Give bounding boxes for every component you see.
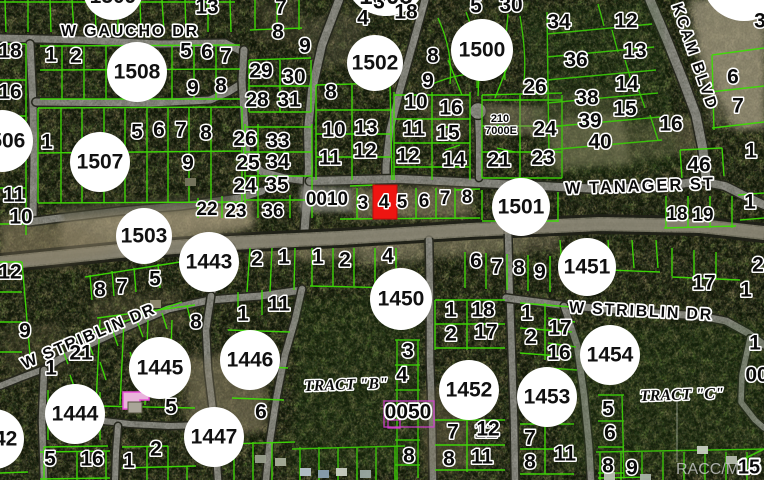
- svg-text:11: 11: [403, 118, 426, 141]
- svg-text:8: 8: [190, 311, 202, 334]
- svg-text:34: 34: [266, 151, 290, 174]
- svg-text:5: 5: [180, 40, 192, 63]
- svg-text:18: 18: [471, 299, 495, 322]
- svg-text:1503: 1503: [121, 225, 168, 248]
- svg-text:1502: 1502: [352, 52, 399, 75]
- svg-text:3: 3: [358, 193, 369, 214]
- svg-text:7: 7: [116, 276, 128, 299]
- svg-text:8: 8: [325, 81, 337, 104]
- svg-text:23: 23: [531, 147, 554, 170]
- svg-text:16: 16: [439, 97, 462, 120]
- svg-text:0050: 0050: [385, 401, 432, 424]
- svg-text:25: 25: [236, 152, 260, 175]
- svg-text:9: 9: [299, 35, 311, 58]
- svg-text:23: 23: [225, 201, 246, 222]
- svg-text:15: 15: [436, 122, 460, 145]
- svg-text:9: 9: [187, 77, 199, 100]
- svg-text:8: 8: [427, 45, 439, 68]
- svg-text:3: 3: [754, 10, 764, 33]
- svg-text:1500: 1500: [459, 39, 506, 62]
- svg-text:17: 17: [692, 272, 715, 295]
- svg-text:1443: 1443: [186, 251, 233, 274]
- svg-text:18: 18: [394, 1, 418, 24]
- svg-text:1: 1: [237, 303, 249, 326]
- svg-text:1: 1: [740, 279, 752, 302]
- svg-text:7: 7: [447, 421, 459, 444]
- svg-text:7: 7: [175, 119, 187, 142]
- svg-text:7: 7: [491, 256, 503, 279]
- svg-text:TRACT "B": TRACT "B": [304, 375, 389, 395]
- svg-text:16: 16: [659, 113, 682, 136]
- svg-text:8: 8: [94, 279, 106, 302]
- svg-text:11: 11: [554, 443, 577, 466]
- svg-text:1450: 1450: [378, 288, 425, 311]
- svg-text:7: 7: [732, 95, 744, 118]
- svg-text:1447: 1447: [191, 426, 238, 449]
- svg-text:5: 5: [131, 121, 143, 144]
- svg-text:35: 35: [265, 174, 289, 197]
- svg-text:1: 1: [749, 332, 761, 355]
- svg-text:36: 36: [262, 201, 283, 222]
- svg-text:14: 14: [442, 149, 466, 172]
- svg-text:8: 8: [272, 21, 284, 44]
- svg-text:5: 5: [165, 396, 177, 419]
- svg-text:30: 30: [282, 66, 305, 89]
- svg-text:16: 16: [0, 81, 22, 104]
- svg-text:9: 9: [626, 457, 638, 480]
- svg-text:1442: 1442: [0, 428, 17, 451]
- svg-text:1507: 1507: [77, 151, 124, 174]
- svg-text:10: 10: [322, 119, 345, 142]
- svg-text:16: 16: [80, 448, 103, 471]
- svg-text:8: 8: [443, 448, 455, 471]
- svg-text:11: 11: [319, 147, 342, 170]
- svg-text:9: 9: [19, 320, 31, 343]
- svg-text:0010: 0010: [306, 189, 348, 210]
- svg-text:5: 5: [44, 448, 56, 471]
- svg-text:8: 8: [200, 122, 212, 145]
- svg-text:1506: 1506: [0, 130, 25, 153]
- svg-text:1508: 1508: [114, 61, 161, 84]
- svg-text:1: 1: [744, 191, 756, 214]
- svg-text:12: 12: [476, 418, 499, 441]
- svg-text:16: 16: [547, 342, 570, 365]
- svg-text:5: 5: [602, 398, 614, 421]
- svg-text:34: 34: [547, 11, 571, 34]
- svg-text:39: 39: [578, 110, 601, 133]
- svg-text:8: 8: [602, 455, 614, 478]
- svg-text:1509: 1509: [90, 0, 137, 8]
- svg-text:15: 15: [613, 98, 637, 121]
- svg-text:3: 3: [373, 0, 385, 14]
- svg-text:7000E: 7000E: [485, 125, 517, 137]
- svg-text:210: 210: [491, 113, 509, 125]
- svg-text:17: 17: [548, 317, 571, 340]
- svg-text:8: 8: [403, 445, 415, 468]
- svg-text:28: 28: [245, 89, 269, 112]
- svg-text:18: 18: [0, 40, 22, 63]
- svg-text:6: 6: [727, 66, 739, 89]
- svg-text:1: 1: [521, 302, 533, 325]
- svg-text:8: 8: [462, 187, 473, 208]
- svg-text:24: 24: [233, 175, 257, 198]
- svg-text:1444: 1444: [52, 403, 99, 426]
- svg-text:2: 2: [251, 248, 263, 271]
- svg-text:2: 2: [525, 326, 537, 349]
- svg-text:36: 36: [564, 49, 587, 72]
- svg-text:6: 6: [470, 250, 482, 273]
- svg-text:31: 31: [277, 89, 301, 112]
- svg-text:1446: 1446: [227, 349, 274, 372]
- svg-text:7: 7: [440, 188, 451, 209]
- svg-text:1: 1: [745, 140, 757, 163]
- svg-text:21: 21: [487, 149, 511, 172]
- svg-text:1: 1: [41, 131, 53, 154]
- svg-text:11: 11: [268, 293, 291, 316]
- svg-text:1: 1: [312, 246, 324, 269]
- svg-text:26: 26: [523, 76, 546, 99]
- svg-text:4: 4: [382, 245, 394, 268]
- svg-text:1: 1: [445, 299, 457, 322]
- svg-text:18: 18: [666, 204, 687, 225]
- svg-text:15: 15: [738, 456, 760, 478]
- svg-text:5: 5: [470, 0, 482, 18]
- svg-text:1: 1: [45, 44, 57, 67]
- svg-text:6: 6: [201, 41, 213, 64]
- svg-text:10: 10: [404, 91, 427, 114]
- svg-text:8: 8: [524, 451, 536, 474]
- svg-text:1453: 1453: [524, 386, 571, 409]
- svg-text:12: 12: [353, 140, 376, 163]
- svg-text:9: 9: [182, 152, 194, 175]
- svg-text:13: 13: [623, 40, 646, 63]
- svg-text:40: 40: [588, 131, 611, 154]
- svg-text:22: 22: [196, 199, 217, 220]
- svg-text:00: 00: [745, 364, 764, 387]
- svg-text:1: 1: [45, 357, 57, 380]
- svg-text:38: 38: [575, 87, 599, 110]
- svg-text:9: 9: [422, 70, 434, 93]
- svg-text:12: 12: [0, 261, 22, 284]
- svg-text:6: 6: [153, 119, 165, 142]
- svg-text:1454: 1454: [587, 344, 634, 367]
- svg-text:7: 7: [275, 0, 287, 19]
- svg-text:4: 4: [357, 7, 369, 30]
- svg-text:7: 7: [220, 45, 232, 68]
- svg-text:12: 12: [614, 10, 637, 33]
- svg-text:TRACT "C": TRACT "C": [640, 385, 725, 405]
- svg-text:29: 29: [249, 60, 272, 83]
- svg-text:19: 19: [692, 205, 713, 226]
- svg-text:1501: 1501: [498, 196, 545, 219]
- svg-text:46: 46: [687, 154, 710, 177]
- svg-text:3: 3: [402, 340, 414, 363]
- svg-text:21: 21: [69, 342, 93, 365]
- svg-text:2: 2: [339, 249, 351, 272]
- svg-text:5: 5: [149, 268, 161, 291]
- svg-text:11: 11: [471, 446, 494, 469]
- svg-text:2: 2: [752, 254, 764, 277]
- svg-text:12: 12: [396, 145, 419, 168]
- svg-text:33: 33: [266, 130, 289, 153]
- svg-text:4: 4: [396, 364, 408, 387]
- svg-text:13: 13: [354, 117, 377, 140]
- svg-text:6: 6: [604, 422, 616, 445]
- svg-text:5: 5: [397, 192, 408, 213]
- svg-text:1: 1: [278, 246, 290, 269]
- svg-text:13: 13: [195, 0, 218, 19]
- svg-text:8: 8: [215, 75, 227, 98]
- svg-text:W GAUCHO DR: W GAUCHO DR: [61, 23, 199, 40]
- svg-text:6: 6: [255, 401, 267, 424]
- svg-text:2: 2: [445, 323, 457, 346]
- svg-text:1445: 1445: [137, 357, 184, 380]
- svg-text:10: 10: [9, 206, 32, 229]
- svg-text:2: 2: [150, 438, 162, 461]
- svg-text:30: 30: [499, 0, 522, 17]
- svg-text:6: 6: [419, 191, 430, 212]
- svg-text:2: 2: [70, 45, 82, 68]
- svg-text:4: 4: [379, 192, 390, 213]
- svg-text:14: 14: [615, 73, 639, 96]
- svg-text:11: 11: [3, 184, 26, 207]
- svg-text:24: 24: [533, 118, 557, 141]
- svg-text:1452: 1452: [446, 379, 493, 402]
- svg-text:26: 26: [233, 128, 256, 151]
- svg-text:1: 1: [123, 450, 135, 473]
- svg-text:8: 8: [513, 257, 525, 280]
- svg-text:9: 9: [534, 261, 546, 284]
- svg-text:1451: 1451: [564, 256, 611, 279]
- svg-text:7: 7: [524, 427, 536, 450]
- svg-text:17: 17: [474, 321, 497, 344]
